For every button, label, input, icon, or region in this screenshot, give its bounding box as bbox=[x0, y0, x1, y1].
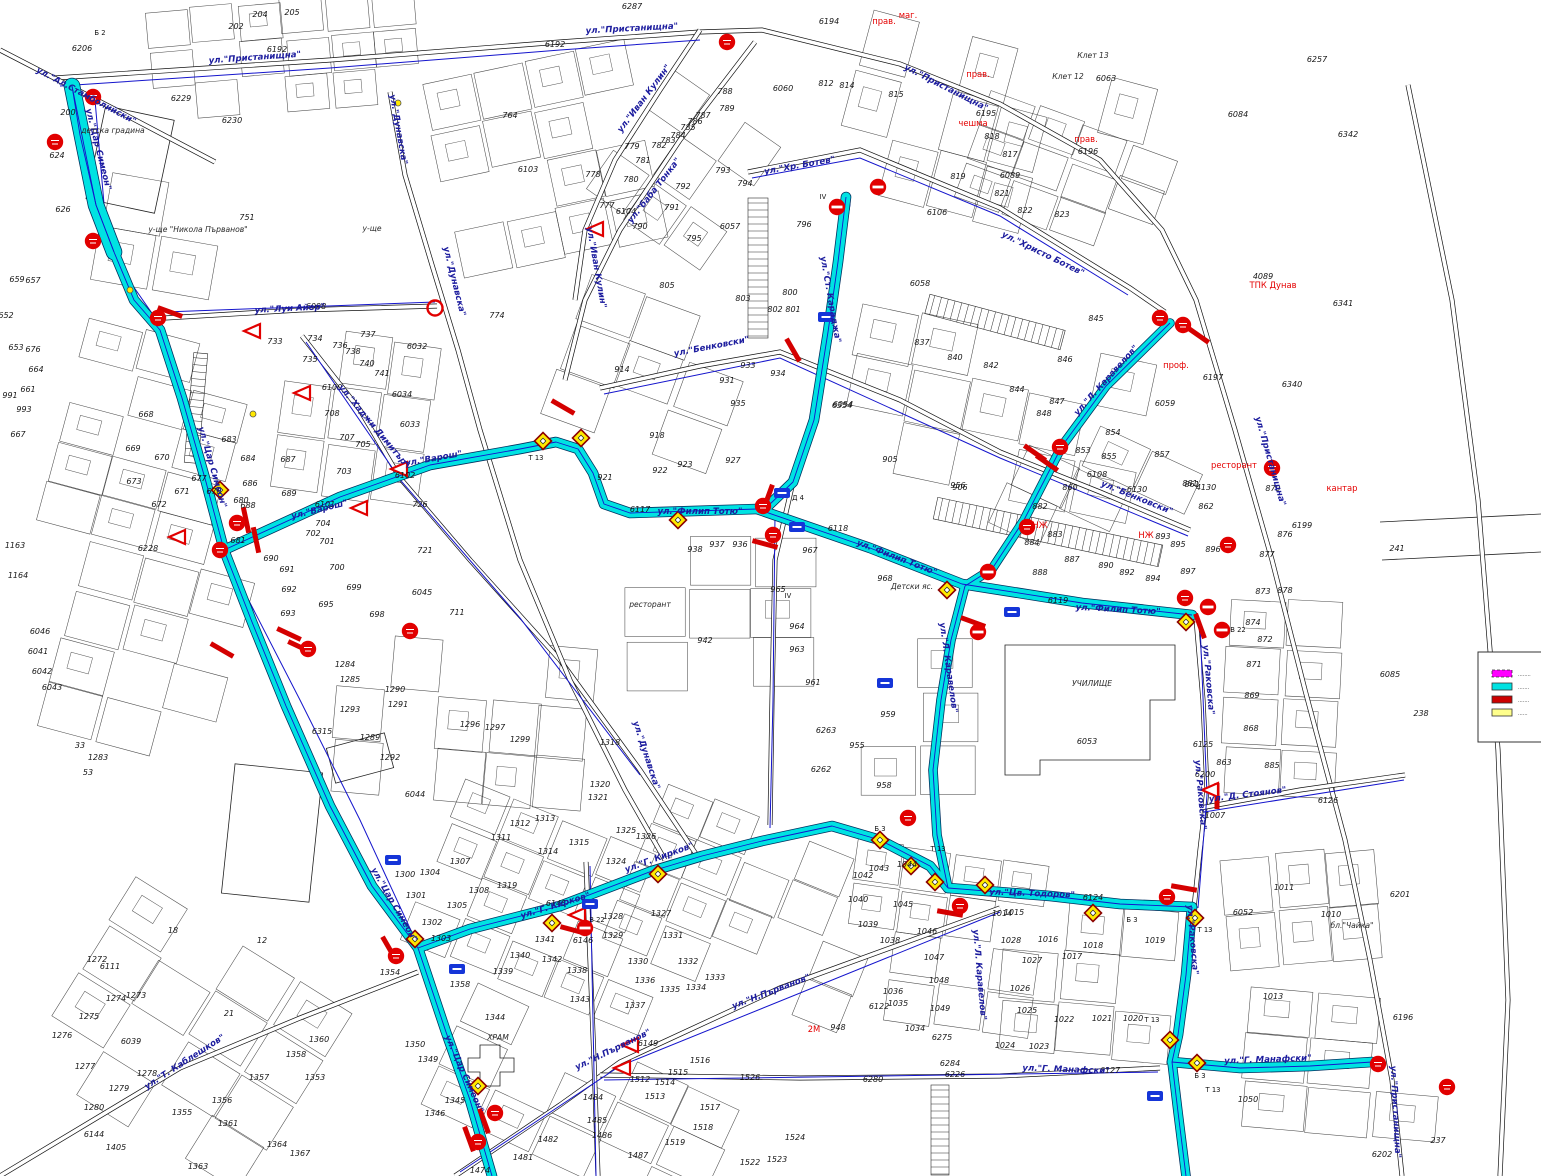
parcel-number: 1320 bbox=[590, 780, 610, 789]
parcel-number: 12 bbox=[257, 936, 267, 945]
building-outline bbox=[875, 758, 897, 776]
parcel-number: 892 bbox=[1119, 568, 1134, 577]
main-casing bbox=[757, 509, 1192, 615]
street-name-label: ул."Хр. Ботев" bbox=[763, 155, 836, 177]
ladder-rung bbox=[1137, 541, 1142, 563]
street-name-label: ул."Н.Първанов" bbox=[731, 973, 812, 1012]
parcel-number: 894 bbox=[1145, 574, 1160, 583]
ladder-rung bbox=[1038, 325, 1043, 344]
parcel-number: 914 bbox=[614, 365, 629, 374]
street-name-label: ул."Филип Тотю" bbox=[657, 507, 742, 517]
parcel-number: 6052 bbox=[1233, 908, 1253, 917]
street-name-label: ул."Бенковски" bbox=[673, 335, 750, 359]
parcel-number: 853 bbox=[1075, 446, 1090, 455]
parcel-number: 1518 bbox=[693, 1123, 713, 1132]
parcel-number: 237 bbox=[1430, 1136, 1446, 1145]
parcel-outline bbox=[325, 0, 370, 31]
parcel-number: 6315 bbox=[312, 727, 332, 736]
ladder-rung bbox=[977, 308, 982, 327]
parcel-number: 1329 bbox=[603, 931, 623, 940]
parcel-number: 1308 bbox=[469, 886, 489, 895]
ladder-rung bbox=[990, 312, 995, 331]
legend-item-label: ...... bbox=[1518, 711, 1528, 717]
ladder-rung bbox=[936, 297, 941, 316]
ladder-rung bbox=[190, 399, 204, 400]
parcel-number: 6146 bbox=[573, 936, 593, 945]
fire-hydrant-icon bbox=[1175, 317, 1191, 333]
parcel-number: 819 bbox=[950, 172, 965, 181]
parcel-number: 6089 bbox=[1000, 171, 1020, 180]
parcel-number: 6196 bbox=[1078, 147, 1098, 156]
parcel-number: 1043 bbox=[869, 864, 889, 873]
parcel-number: 1342 bbox=[542, 955, 562, 964]
parcel-number: 965 bbox=[770, 585, 785, 594]
parcel-number: 921 bbox=[597, 473, 612, 482]
ladder-rung bbox=[1011, 317, 1016, 336]
parcel-number: 6340 bbox=[1282, 380, 1302, 389]
parcel-number: 741 bbox=[374, 369, 389, 378]
parcel-outline bbox=[215, 1075, 293, 1150]
parcel-number: 1025 bbox=[1017, 1006, 1037, 1015]
parcel-number: 671 bbox=[174, 487, 189, 496]
fire-hydrant-icon bbox=[1220, 537, 1236, 553]
parcel-number: 1275 bbox=[79, 1012, 99, 1021]
parcel-number: 6103 bbox=[518, 165, 538, 174]
parcel-outline bbox=[391, 636, 443, 692]
parcel-outline bbox=[982, 992, 1033, 1039]
fire-hydrant-icon bbox=[952, 898, 968, 914]
pipe-ref-label: Б 3 bbox=[1126, 916, 1137, 924]
ladder-rung bbox=[1045, 326, 1050, 345]
parcel-number: 1285 bbox=[340, 675, 360, 684]
parcel-number: 1314 bbox=[538, 847, 558, 856]
parcel-number: 1519 bbox=[665, 1138, 685, 1147]
building-outline bbox=[590, 54, 613, 75]
pipe-ref-label: Т 13 bbox=[1144, 1016, 1160, 1024]
parcel-outline bbox=[634, 1167, 703, 1176]
parcel-number: 6043 bbox=[42, 683, 62, 692]
parcel-number: 958 bbox=[876, 781, 891, 790]
parcel-number: 702 bbox=[305, 529, 320, 538]
parcel-number: 1027 bbox=[1022, 956, 1043, 965]
fitting-marker-glyph bbox=[793, 526, 802, 528]
parcel-number: 1516 bbox=[690, 1056, 710, 1065]
parcel-number: 1356 bbox=[212, 1096, 232, 1105]
building-outline bbox=[342, 42, 360, 56]
ladder-strip-frame bbox=[931, 1085, 949, 1175]
parcel-number: 888 bbox=[1032, 568, 1047, 577]
pipe-ref-label: IV bbox=[820, 193, 827, 201]
parcel-number: 1349 bbox=[418, 1055, 438, 1064]
parcel-outline bbox=[91, 495, 155, 548]
ladder-rung bbox=[952, 501, 957, 523]
fire-hydrant-icon bbox=[229, 515, 245, 531]
parcel-number: 205 bbox=[284, 8, 299, 17]
building-outline bbox=[496, 766, 517, 786]
building-outline bbox=[1258, 1093, 1284, 1112]
pipe-ref-label: Т 13 bbox=[1205, 1086, 1221, 1094]
parcel-number: 6144 bbox=[84, 1130, 104, 1139]
parcel-number: 882 bbox=[1032, 502, 1047, 511]
ladder-rung bbox=[1031, 323, 1036, 342]
parcel-outline bbox=[1373, 1091, 1439, 1142]
parcel-number: 812 bbox=[818, 79, 833, 88]
parcel-number: 1318 bbox=[600, 738, 620, 747]
parcel-number: 1357 bbox=[249, 1073, 270, 1082]
parcel-number: 1315 bbox=[569, 838, 589, 847]
parcel-number: 6118 bbox=[828, 524, 848, 533]
air-valve-triangle-icon bbox=[169, 530, 185, 544]
parcel-number: 1304 bbox=[420, 868, 440, 877]
fire-hydrant-icon bbox=[150, 310, 166, 326]
parcel-number: 6194 bbox=[819, 17, 839, 26]
parcel-number: 667 bbox=[10, 430, 26, 439]
place-name-label: у-ще "Никола Първанов" bbox=[147, 225, 247, 234]
place-name-label: Детски яс. bbox=[890, 582, 933, 591]
parcel-number: 967 bbox=[802, 546, 818, 555]
building-outline bbox=[384, 38, 402, 52]
parcel-number: 1296 bbox=[460, 720, 480, 729]
building-outline bbox=[1115, 94, 1139, 119]
parcel-number: 1022 bbox=[1054, 1015, 1074, 1024]
red-annotation: 2М bbox=[808, 1024, 821, 1034]
gate-valve-bar-icon bbox=[209, 641, 234, 658]
parcel-number: 33 bbox=[75, 741, 85, 750]
parcel-number: 927 bbox=[725, 456, 741, 465]
fire-hydrant-icon bbox=[1052, 439, 1068, 455]
parcel-number: 931 bbox=[719, 376, 734, 385]
parcel-zone bbox=[37, 539, 254, 771]
parcel-number: 1360 bbox=[309, 1035, 329, 1044]
building-outline bbox=[1127, 1024, 1151, 1043]
road-casing bbox=[1408, 85, 1508, 1176]
parcel-number: 796 bbox=[796, 220, 811, 229]
parcel-number: 1339 bbox=[493, 967, 513, 976]
parcel-number: 1345 bbox=[445, 1096, 465, 1105]
parcel-number: 1358 bbox=[286, 1050, 306, 1059]
parcel-number: 815 bbox=[888, 90, 903, 99]
parcel-outline bbox=[482, 753, 534, 809]
parcel-number: 1522 bbox=[740, 1158, 760, 1167]
street-name-label: ул."Дунавска" bbox=[387, 94, 409, 166]
parcel-number: 1026 bbox=[1010, 984, 1030, 993]
parcel-outline bbox=[690, 589, 750, 638]
parcel-number: 1334 bbox=[686, 983, 706, 992]
ladder-strip-frame bbox=[925, 294, 1065, 350]
parcel-number: 897 bbox=[1180, 567, 1196, 576]
ladder-rung bbox=[1150, 543, 1155, 565]
building-outline bbox=[1014, 1013, 1038, 1032]
parcel-number: 686 bbox=[242, 479, 257, 488]
parcel-outline bbox=[535, 102, 593, 158]
parcel-number: 1028 bbox=[1001, 936, 1021, 945]
parcel-number: 1326 bbox=[636, 832, 656, 841]
street-name-label: ул."Л. Каравелов" bbox=[970, 929, 988, 1021]
parcel-number: 1034 bbox=[905, 1024, 925, 1033]
building-outline bbox=[402, 356, 423, 377]
parcel-number: 895 bbox=[1170, 540, 1185, 549]
red-annotation: кантар bbox=[1327, 483, 1358, 493]
parcel-number: 6201 bbox=[1390, 890, 1410, 899]
ladder-strip bbox=[925, 294, 1065, 350]
parcel-number: 789 bbox=[719, 104, 734, 113]
parcel-number: 868 bbox=[1243, 724, 1258, 733]
ladder-rung bbox=[1102, 533, 1107, 555]
parcel-outline bbox=[195, 79, 240, 118]
street-name-label: ул."Филип Тотю" bbox=[855, 538, 938, 578]
parcel-outline bbox=[1121, 145, 1177, 194]
parcel-number: 918 bbox=[649, 431, 664, 440]
parcel-number: 1039 bbox=[858, 920, 878, 929]
parcel-number: 948 bbox=[830, 1023, 845, 1032]
parcel-zone bbox=[625, 536, 816, 690]
parcel-number: 668 bbox=[138, 410, 153, 419]
fire-hydrant-icon bbox=[1439, 1079, 1455, 1095]
ladder-rung bbox=[1109, 535, 1114, 557]
parcel-number: 923 bbox=[677, 460, 692, 469]
ladder-rung bbox=[957, 303, 962, 322]
parcel-number: 6106 bbox=[927, 208, 947, 217]
ladder-rung bbox=[972, 506, 977, 528]
parcel-number: 6262 bbox=[811, 765, 831, 774]
parcel-number: 204 bbox=[252, 10, 267, 19]
parcel-outline bbox=[371, 0, 416, 28]
air-valve-triangle-icon bbox=[294, 386, 310, 400]
parcel-number: 738 bbox=[345, 347, 360, 356]
fire-hydrant-icon bbox=[402, 623, 418, 639]
parcel-number: 878 bbox=[1277, 586, 1292, 595]
parcel-number: 673 bbox=[126, 477, 141, 486]
parcel-number: 1049 bbox=[930, 1004, 950, 1013]
ladder-rung bbox=[959, 503, 964, 525]
parcel-number: 700 bbox=[329, 563, 344, 572]
parcel-number: 1048 bbox=[929, 976, 949, 985]
building-outline bbox=[765, 601, 789, 619]
parcel-number: 1163 bbox=[5, 541, 25, 550]
parcel-outline bbox=[433, 748, 485, 804]
parcel-number: 905 bbox=[882, 455, 897, 464]
parcel-number: 873 bbox=[1255, 587, 1270, 596]
road-casing bbox=[55, 30, 1402, 1176]
ladder-rung bbox=[1024, 321, 1029, 340]
parcel-number: 6059 bbox=[1155, 399, 1175, 408]
parcel-number: 669 bbox=[125, 444, 140, 453]
parcel-number: 6124 bbox=[1083, 893, 1103, 902]
parcel-number: 1292 bbox=[380, 753, 400, 762]
legend-item-label: ....... bbox=[1518, 698, 1530, 704]
parcel-number: 1482 bbox=[538, 1135, 558, 1144]
fitting-marker-glyph bbox=[453, 968, 462, 970]
building-outline bbox=[67, 652, 93, 674]
red-annotation: проф. bbox=[1163, 360, 1189, 370]
fire-hydrant-icon bbox=[470, 1134, 486, 1150]
parcel-outline bbox=[904, 370, 971, 433]
reconstructed-main bbox=[757, 509, 1192, 615]
parcel-number: 6125 bbox=[1193, 740, 1213, 749]
building-outline bbox=[201, 403, 226, 423]
place-name-label: УЧИЛИЩЕ bbox=[1072, 679, 1112, 688]
parcel-number: 1523 bbox=[767, 1155, 787, 1164]
parcel-number: 659 bbox=[9, 275, 24, 284]
reconstructed-main bbox=[224, 442, 757, 550]
parcel-number: 681 bbox=[230, 536, 245, 545]
fire-hydrant-icon bbox=[85, 233, 101, 249]
building-outline bbox=[970, 175, 992, 194]
air-valve-triangle-icon bbox=[244, 324, 260, 338]
pipe-ref-label: В 22 bbox=[1230, 626, 1245, 634]
parcel-number: 937 bbox=[709, 540, 725, 549]
building-outline bbox=[437, 89, 460, 110]
road-surface bbox=[0, 972, 418, 1176]
parcel-zone bbox=[994, 896, 1180, 1064]
parcel-number: 845 bbox=[1088, 314, 1103, 323]
parcel-number: 872 bbox=[1257, 635, 1272, 644]
building-outline bbox=[445, 140, 468, 161]
parcel-number: 1350 bbox=[405, 1040, 425, 1049]
parcel-number: 6057 bbox=[720, 222, 741, 231]
building-outline bbox=[207, 583, 233, 605]
parcel-number: 1355 bbox=[172, 1108, 192, 1117]
parcel-number: 1313 bbox=[535, 814, 555, 823]
ladder-rung bbox=[1096, 532, 1101, 554]
main-pipe-line bbox=[757, 509, 1192, 615]
parcel-number: 1284 bbox=[335, 660, 355, 669]
parcel-number: 778 bbox=[585, 170, 600, 179]
parcel-number: 6354 bbox=[832, 401, 852, 410]
parcel-number: 1036 bbox=[883, 987, 903, 996]
no-entry-bar bbox=[580, 927, 591, 930]
legend-swatch bbox=[1492, 670, 1512, 677]
parcel-number: 691 bbox=[279, 565, 294, 574]
building-outline bbox=[108, 508, 133, 528]
parcel-number: 6341 bbox=[1333, 299, 1353, 308]
parcel-outline bbox=[60, 402, 124, 455]
parcel-number: 848 bbox=[1036, 409, 1051, 418]
building-outline bbox=[77, 415, 102, 435]
building-outline bbox=[344, 79, 362, 93]
parcel-number: 1319 bbox=[497, 881, 517, 890]
ladder-rung bbox=[1089, 530, 1094, 552]
ladder-rung bbox=[1051, 328, 1056, 347]
parcel-outline bbox=[1098, 77, 1158, 144]
red-annotation: маг. bbox=[899, 10, 918, 20]
parcel-number: 884 bbox=[1024, 538, 1039, 547]
parcel-number: 1338 bbox=[567, 966, 587, 975]
ladder-strip-frame bbox=[748, 198, 768, 338]
parcel-number: 964 bbox=[789, 622, 804, 631]
red-annotation: прав. bbox=[1074, 134, 1098, 144]
parcel-number: 690 bbox=[263, 554, 278, 563]
red-annotation: ТПК Дунав bbox=[1248, 280, 1296, 290]
parcel-number: 1311 bbox=[491, 833, 511, 842]
building-outline bbox=[545, 874, 569, 895]
ladder-rung bbox=[1004, 315, 1009, 334]
parcel-number: 1515 bbox=[668, 1068, 688, 1077]
parcel-number: 6263 bbox=[816, 726, 836, 735]
road-casing bbox=[0, 972, 418, 1176]
legend-item-label: ....... bbox=[1518, 685, 1530, 691]
parcel-number: 688 bbox=[240, 501, 255, 510]
parcel-number: 1486 bbox=[592, 1131, 612, 1140]
parcel-number: 955 bbox=[849, 741, 864, 750]
parcel-number: 6060 bbox=[773, 84, 793, 93]
building-outline bbox=[141, 619, 167, 641]
parcel-number: 1524 bbox=[785, 1133, 805, 1142]
building-outline bbox=[561, 973, 585, 994]
ladder-strip bbox=[931, 1085, 949, 1175]
red-annotation: прав. bbox=[872, 16, 896, 26]
parcel-number: 877 bbox=[1259, 550, 1275, 559]
ladder-rung bbox=[1075, 527, 1080, 549]
parcel-number: 6202 bbox=[1372, 1150, 1392, 1159]
parcel-number: 788 bbox=[717, 87, 732, 96]
parcel-number: 751 bbox=[239, 213, 254, 222]
red-annotation: ресторант bbox=[1211, 460, 1257, 470]
air-valve-triangle-icon bbox=[351, 501, 367, 515]
fire-hydrant-icon bbox=[1159, 889, 1175, 905]
parcel-number: 784 bbox=[670, 131, 685, 140]
parcel-number: 701 bbox=[319, 537, 334, 546]
road-surface bbox=[586, 862, 598, 1176]
parcel-number: 683 bbox=[221, 435, 236, 444]
city-map-canvas[interactable]: 2002022042056206623062297516266246192619… bbox=[0, 0, 1541, 1176]
parcel-number: 1277 bbox=[75, 1062, 96, 1071]
no-entry-bar bbox=[973, 631, 984, 634]
parcel-outline bbox=[878, 140, 938, 207]
ladder-rung bbox=[950, 301, 955, 320]
parcel-number: 1312 bbox=[510, 819, 530, 828]
parcel-number: 1038 bbox=[880, 936, 900, 945]
parcel-number: 1340 bbox=[510, 951, 530, 960]
ladder-rung bbox=[193, 358, 207, 359]
parcel-outline bbox=[532, 755, 584, 811]
parcel-number: 1020 bbox=[1123, 1014, 1143, 1023]
parcel-number: 1331 bbox=[663, 931, 683, 940]
pipe-ref-label: Б 2 bbox=[94, 29, 105, 37]
parcel-number: 963 bbox=[789, 645, 804, 654]
parcel-number: 6045 bbox=[412, 588, 432, 597]
parcel-number: 1405 bbox=[106, 1143, 126, 1152]
parcel-number: 935 bbox=[730, 399, 745, 408]
block-line bbox=[1382, 552, 1541, 560]
parcel-number: 1321 bbox=[588, 793, 608, 802]
parcel-number: 934 bbox=[770, 369, 785, 378]
fire-hydrant-icon bbox=[212, 542, 228, 558]
parcel-outline bbox=[507, 212, 565, 268]
pipe-ref-label: В 22 bbox=[589, 916, 604, 924]
parcel-outline bbox=[163, 664, 228, 723]
map-viewport[interactable]: 2002022042056206623062297516266246192619… bbox=[0, 0, 1541, 1176]
parcel-number: 1513 bbox=[645, 1092, 665, 1101]
parcel-number: 6053 bbox=[1077, 737, 1097, 746]
parcel-number: 6199 bbox=[1292, 521, 1312, 530]
fire-hydrant-icon bbox=[765, 527, 781, 543]
parcel-number: 672 bbox=[151, 500, 166, 509]
parcel-number: 6041 bbox=[28, 647, 48, 656]
parcel-number: 726 bbox=[412, 500, 427, 509]
parcel-number: 1273 bbox=[126, 991, 146, 1000]
parcel-number: 1019 bbox=[1145, 936, 1165, 945]
parcel-number: 1354 bbox=[380, 968, 400, 977]
no-entry-bar bbox=[1203, 606, 1214, 609]
place-name-label: у-ще bbox=[361, 224, 381, 233]
parcel-number: 1328 bbox=[603, 912, 623, 921]
parcel-number: 1517 bbox=[700, 1103, 721, 1112]
legend-item-label: ........ bbox=[1518, 672, 1531, 678]
parcel-number: 842 bbox=[983, 361, 998, 370]
parcel-number: 4130 bbox=[1196, 483, 1216, 492]
parcel-number: 1279 bbox=[109, 1084, 129, 1093]
